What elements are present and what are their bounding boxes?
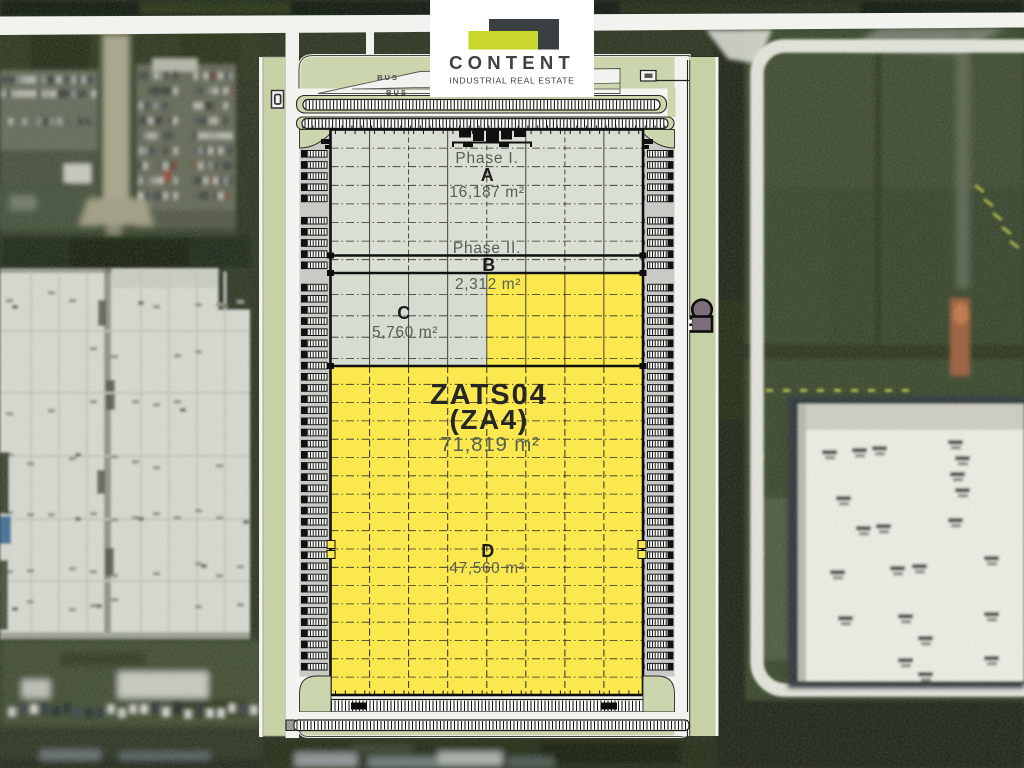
svg-text:B: B: [482, 255, 496, 275]
svg-text:2,312 m²: 2,312 m²: [455, 276, 521, 293]
svg-text:16,187 m²: 16,187 m²: [449, 184, 524, 201]
svg-text:47,560 m²: 47,560 m²: [449, 560, 524, 577]
svg-text:INDUSTRIAL REAL ESTATE: INDUSTRIAL REAL ESTATE: [449, 76, 574, 86]
svg-text:BUS: BUS: [377, 73, 399, 82]
svg-text:5,760 m²: 5,760 m²: [372, 324, 438, 341]
svg-text:D: D: [481, 541, 495, 561]
svg-text:71,819 m²: 71,819 m²: [440, 433, 540, 456]
svg-text:A: A: [481, 165, 495, 185]
svg-text:(ZA4): (ZA4): [449, 404, 528, 435]
svg-text:CONTENT: CONTENT: [449, 52, 575, 73]
svg-text:C: C: [397, 303, 411, 323]
